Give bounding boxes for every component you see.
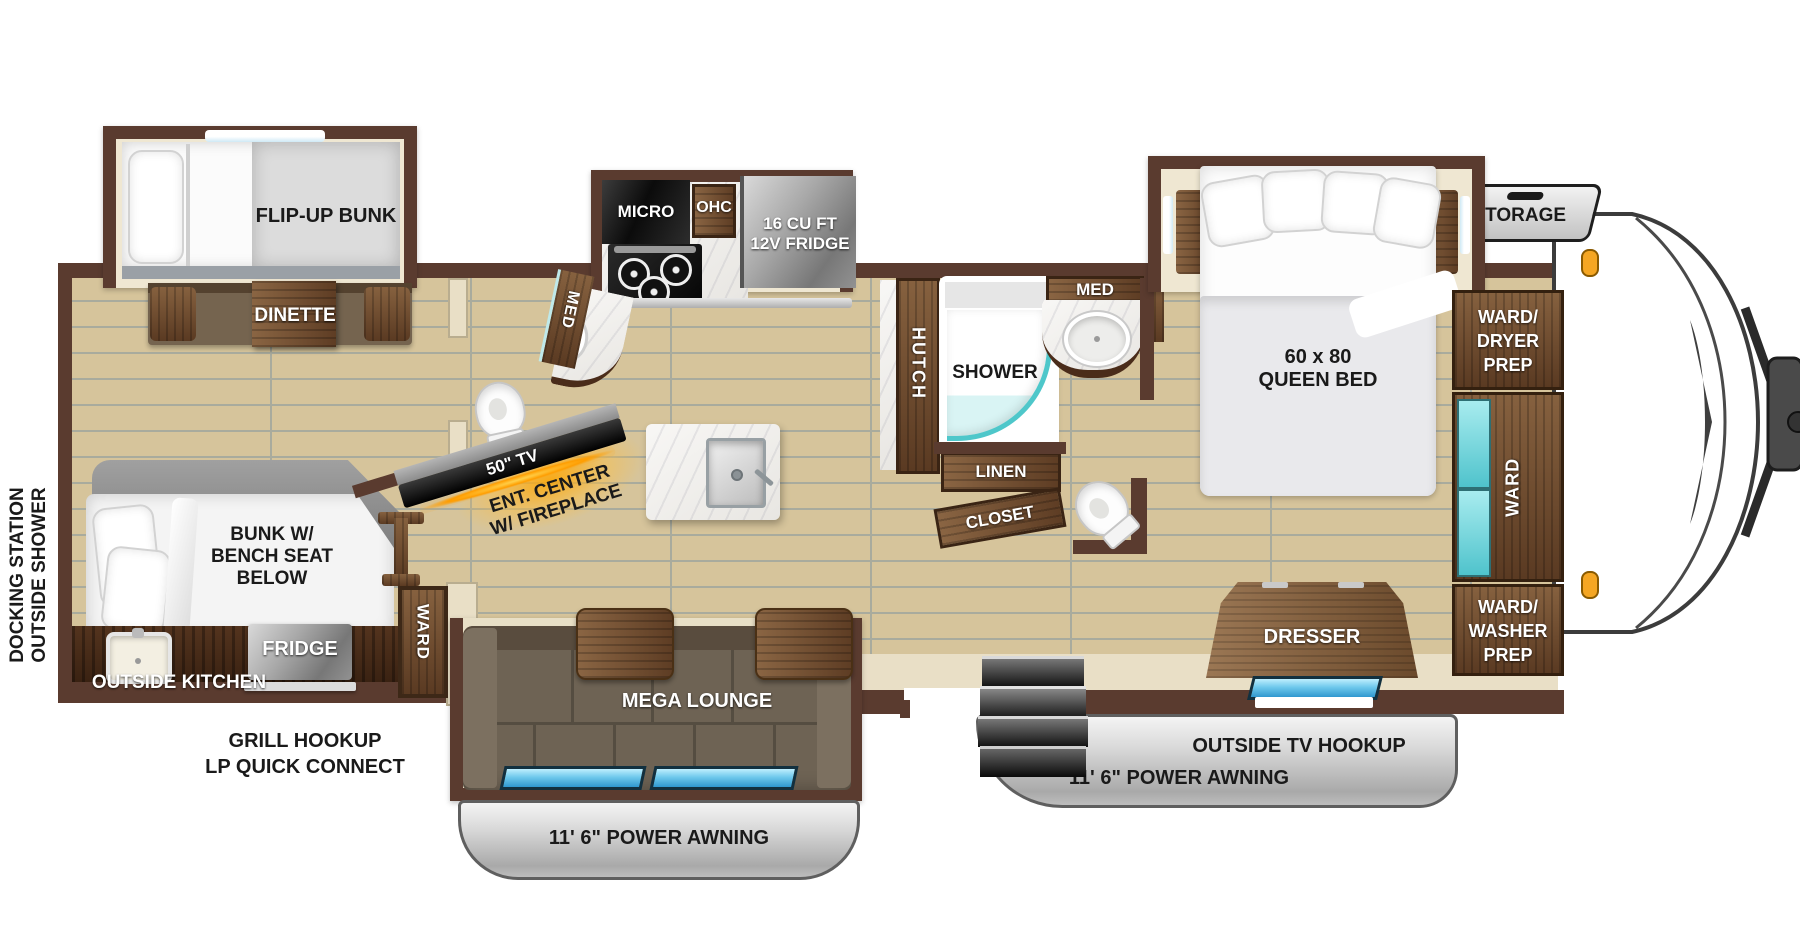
step-2 — [980, 686, 1086, 717]
vanity-sink — [1064, 312, 1130, 366]
bath-south-wall — [934, 442, 1066, 454]
left-wall — [58, 263, 72, 703]
step-3 — [978, 716, 1088, 747]
dinette-armrest-right — [364, 287, 410, 341]
island-sink — [706, 438, 766, 508]
docking-station-line1: DOCKING STATION — [7, 445, 29, 705]
microwave: MICRO — [602, 180, 690, 244]
bedroom-window-left — [1163, 196, 1173, 254]
dinette-armrest-left — [150, 287, 196, 341]
sofa-seam-1 — [571, 650, 574, 722]
queen-bed: 60 x 80 QUEEN BED — [1200, 166, 1436, 496]
bench-bunk-label: BUNK W/ BENCH SEAT BELOW — [182, 524, 362, 590]
bedroom-window-right — [1460, 196, 1470, 254]
sink-faucet — [132, 628, 144, 638]
entry-door-gap — [904, 688, 982, 716]
hitch-ball — [1788, 412, 1800, 432]
grill-hookup-line1: GRILL HOOKUP — [165, 728, 445, 754]
bottom-wall-vent — [1255, 697, 1373, 708]
ward-dryer-line3: PREP — [1455, 353, 1561, 377]
ward-dryer-label: WARD/ DRYER PREP — [1455, 305, 1561, 377]
dresser-hinge-right — [1338, 582, 1364, 588]
bench-bunk-line2: BENCH SEAT — [182, 546, 362, 568]
ward-mirror-lower — [1457, 489, 1491, 577]
dinette-bench: DINETTE — [148, 283, 412, 345]
bunk-sheet-fold — [186, 144, 190, 268]
ward-washer-cabinet: WARD/ WASHER PREP — [1452, 584, 1564, 676]
outside-kitchen-label: OUTSIDE KITCHEN — [64, 672, 294, 694]
fridge-16-line2: 12V FRIDGE — [744, 234, 856, 254]
ward-right-label: WARD — [1503, 457, 1524, 517]
grill-hookup-label: GRILL HOOKUP LP QUICK CONNECT — [165, 728, 445, 780]
bunk-slide-window — [205, 130, 325, 142]
sofa-seam-h — [497, 722, 817, 725]
kitchen-island — [646, 424, 780, 520]
step-4 — [980, 746, 1086, 777]
mega-lounge-label: MEGA LOUNGE — [597, 690, 797, 713]
half-bath-partition-upper — [448, 278, 468, 338]
ohc-label: OHC — [695, 199, 733, 217]
bench-bunk-line3: BELOW — [182, 568, 362, 590]
ward-washer-line3: PREP — [1455, 643, 1561, 667]
island-faucet — [754, 469, 774, 487]
docking-station-label: DOCKING STATION OUTSIDE SHOWER — [7, 445, 53, 705]
lounge-window-right — [649, 766, 798, 790]
lounge-awning-label: 11' 6" POWER AWNING — [509, 827, 809, 850]
lounge-table-right — [755, 608, 853, 680]
clearance-light-bottom — [1582, 572, 1598, 598]
entry-door-jamb — [900, 700, 910, 718]
linen-label: LINEN — [944, 462, 1058, 482]
shower-stall: SHOWER — [943, 280, 1055, 448]
shower-top-ledge — [945, 282, 1053, 308]
ward-washer-line2: WASHER — [1455, 619, 1561, 643]
cap-outline — [1554, 214, 1758, 632]
sofa-armrest-left — [463, 628, 497, 788]
shower-label: SHOWER — [943, 362, 1047, 384]
ward-mirror-upper — [1457, 399, 1491, 489]
front-cap — [1540, 200, 1800, 650]
island-sink-drain — [731, 469, 743, 481]
dresser-label: DRESSER — [1206, 626, 1418, 649]
step-1 — [982, 656, 1084, 687]
vanity-sink-drain — [1094, 336, 1100, 342]
queen-bed-name: QUEEN BED — [1218, 369, 1418, 392]
entry-steps — [978, 656, 1088, 778]
bunk-deck-edge — [122, 266, 400, 279]
queen-pillow-4 — [1371, 175, 1444, 251]
storage-handle — [1506, 192, 1544, 200]
floorplan-canvas: DOCKING STATION OUTSIDE SHOWER STORAGE F… — [0, 0, 1800, 950]
clearance-light-top — [1582, 250, 1598, 276]
side-table-post — [394, 518, 408, 580]
lounge-awning: 11' 6" POWER AWNING — [458, 800, 860, 880]
fridge-16-line1: 16 CU FT — [744, 214, 856, 234]
microwave-label: MICRO — [602, 202, 690, 222]
dresser-hinge-left — [1262, 582, 1288, 588]
half-bath-med-label: MED — [556, 289, 582, 331]
main-bottom-wall-left — [858, 690, 904, 714]
outside-tv-hookup-label: OUTSIDE TV HOOKUP — [1149, 735, 1449, 758]
outside-fridge-label: FRIDGE — [248, 638, 352, 661]
ward-dryer-cabinet: WARD/ DRYER PREP — [1452, 290, 1564, 390]
outside-shower-line2: OUTSIDE SHOWER — [29, 445, 51, 705]
bedroom-divider-wall — [1140, 278, 1154, 400]
bench-bunk-line1: BUNK W/ — [182, 524, 362, 546]
overhead-cabinet: OHC — [692, 184, 736, 238]
kitchen-counter-edge — [606, 298, 852, 308]
sink-drain-dot — [135, 658, 141, 664]
hutch-label: HUTCH — [908, 327, 929, 400]
ward-left-label: WARD — [413, 604, 433, 660]
ward-dryer-line2: DRYER — [1455, 329, 1561, 353]
lounge-window-left — [499, 766, 646, 790]
queen-bed-label: 60 x 80 QUEEN BED — [1218, 346, 1418, 392]
queen-bed-size: 60 x 80 — [1218, 346, 1418, 369]
bath-med-label: MED — [1049, 280, 1141, 300]
linen-cabinet: LINEN — [941, 452, 1061, 492]
side-table-base — [382, 574, 420, 586]
ward-left-cabinet: WARD — [398, 586, 448, 698]
bunk-pillow — [128, 150, 184, 264]
fridge-16cuft-label: 16 CU FT 12V FRIDGE — [744, 214, 856, 253]
ward-washer-label: WARD/ WASHER PREP — [1455, 595, 1561, 667]
dinette-label: DINETTE — [230, 305, 360, 327]
fridge-16cuft: 16 CU FT 12V FRIDGE — [740, 176, 856, 288]
lounge-table-left — [576, 608, 674, 680]
dresser: DRESSER — [1206, 582, 1418, 678]
ward-washer-line1: WARD/ — [1455, 595, 1561, 619]
flip-up-bunk-label: FLIP-UP BUNK — [248, 205, 404, 228]
bench-bunk-pillow2 — [100, 545, 172, 635]
grill-hookup-line2: LP QUICK CONNECT — [165, 754, 445, 780]
ward-mirror-cabinet: WARD — [1452, 392, 1564, 582]
ward-dryer-line1: WARD/ — [1455, 305, 1561, 329]
cooktop-handle — [614, 246, 696, 253]
